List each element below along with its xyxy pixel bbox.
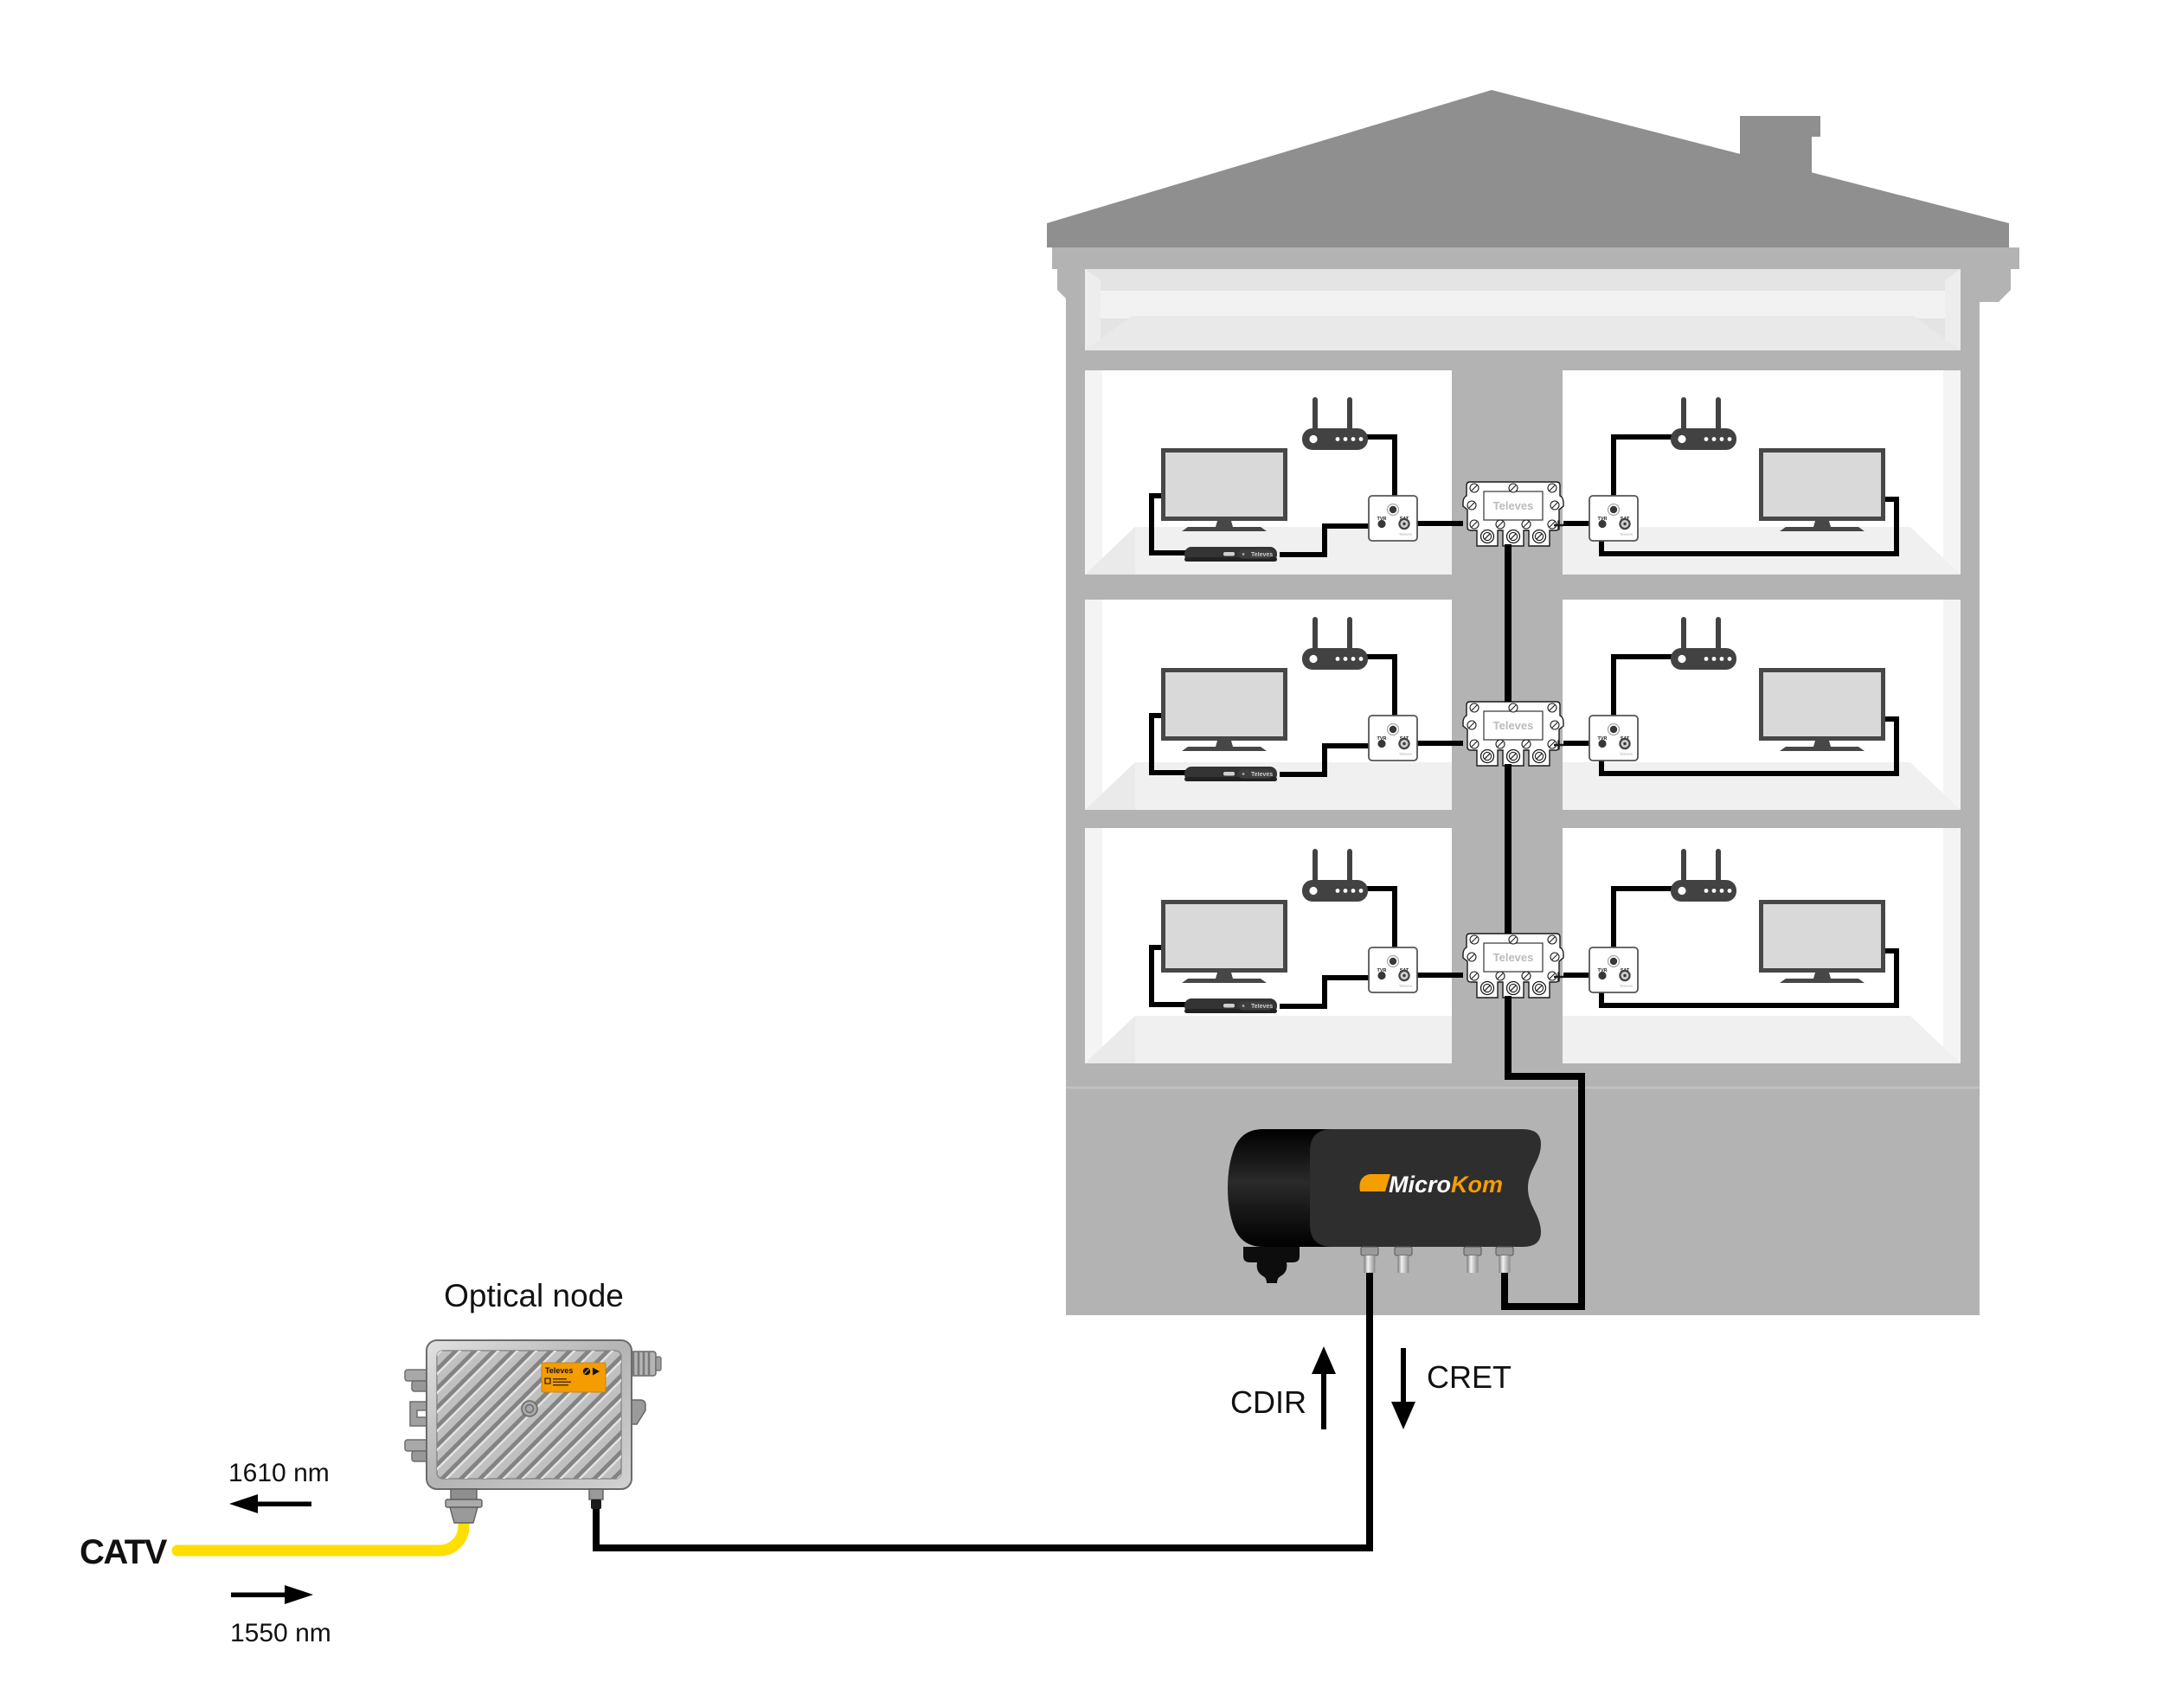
svg-text:1610 nm: 1610 nm xyxy=(228,1459,330,1487)
svg-text:CATV: CATV xyxy=(80,1533,168,1571)
svg-text:CDIR: CDIR xyxy=(1230,1384,1306,1420)
svg-text:CRET: CRET xyxy=(1427,1359,1512,1395)
svg-text:MicroKom: MicroKom xyxy=(1389,1172,1503,1198)
svg-text:1550 nm: 1550 nm xyxy=(230,1619,331,1647)
svg-text:Optical node: Optical node xyxy=(444,1278,624,1313)
svg-text:Televes: Televes xyxy=(545,1366,573,1375)
